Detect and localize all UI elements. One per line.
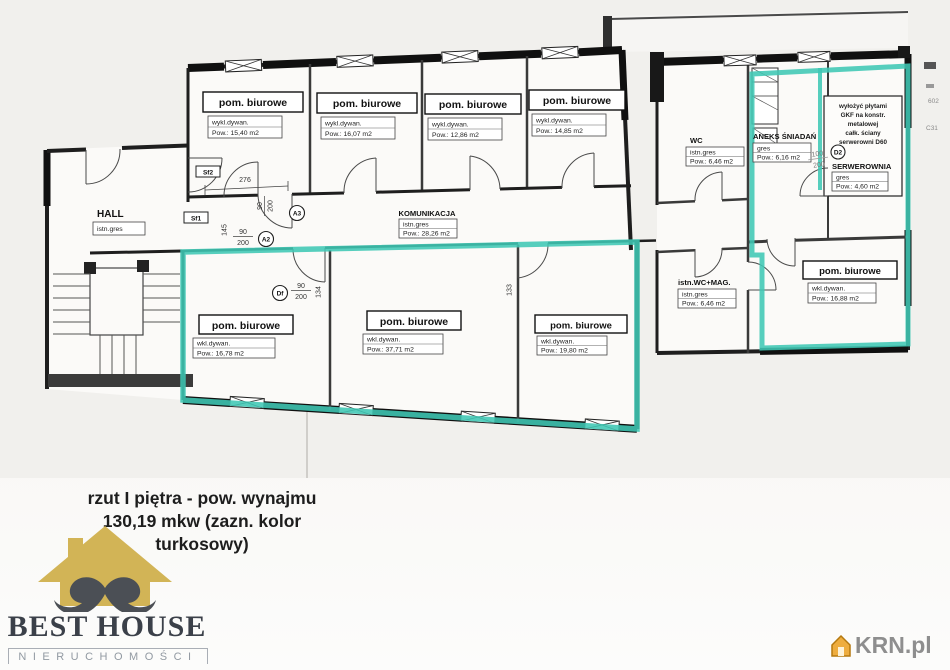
best-house-logo: BEST HOUSE NIERUCHOMOŚCI xyxy=(0,522,214,670)
room-area: Pow.: 37,71 m2 xyxy=(367,347,414,354)
dim-door-width: 90 xyxy=(257,202,264,210)
room-name: pom. biurowe xyxy=(219,97,287,109)
room-material: wkl.dywan. xyxy=(811,286,845,293)
room-material: istn.gres xyxy=(403,222,429,229)
room-name: WC xyxy=(690,136,703,145)
krn-watermark: KRN.pl xyxy=(830,632,932,659)
door-marker-a3: A3 xyxy=(293,211,302,218)
note-line: metalowej xyxy=(848,121,879,128)
room-material: wykl.dywan. xyxy=(431,122,469,129)
room-material: wykl.dywan. xyxy=(324,121,362,128)
artifact-text: C31 xyxy=(926,125,938,132)
dim-133: 133 xyxy=(507,284,514,296)
caption-line-1: rzut I piętra - pow. wynajmu xyxy=(52,487,352,510)
marker-sf2: Sf2 xyxy=(203,170,214,177)
dim-door-width: 90 xyxy=(239,229,247,236)
logo-subtitle: NIERUCHOMOŚCI xyxy=(8,648,208,664)
room-name: HALL xyxy=(97,209,124,220)
room-name: pom. biurowe xyxy=(543,95,611,107)
dim-door-height: 200 xyxy=(295,294,307,301)
krn-watermark-text: KRN.pl xyxy=(855,632,932,659)
room-label-komunikacja: KOMUNIKACJA istn.gres Pow.: 28,26 m2 xyxy=(399,209,457,238)
door-marker-a2: A2 xyxy=(262,237,271,244)
dim-door-width: 90 xyxy=(297,283,305,290)
room-material: wkl.dywan. xyxy=(196,341,230,348)
room-area: Pow.: 4,60 m2 xyxy=(836,184,879,191)
room-material: gres xyxy=(757,146,771,153)
hall-bottom-wall xyxy=(48,374,193,387)
room-name: pom. biurowe xyxy=(819,266,881,277)
room-area: Pow.: 6,16 m2 xyxy=(757,155,800,162)
room-label-aneks-sniadan: ANEKS ŚNIADAŃ gres Pow.: 6,16 m2 xyxy=(753,132,816,162)
room-name: pom. biurowe xyxy=(550,321,612,332)
krn-house-icon xyxy=(830,634,852,658)
room-area: Pow.: 16,07 m2 xyxy=(325,131,372,138)
room-name: pom. biurowe xyxy=(333,98,401,110)
logo-title: BEST HOUSE xyxy=(4,610,210,644)
room-material: istn.gres xyxy=(682,292,708,299)
room-name: pom. biurowe xyxy=(439,99,507,111)
room-area: Pow.: 16,78 m2 xyxy=(197,351,244,358)
room-area: Pow.: 6,46 m2 xyxy=(682,301,725,308)
room-area: Pow.: 12,86 m2 xyxy=(432,132,479,139)
floor-plan-drawing: pom. biurowe wykl.dywan. Pow.: 15,40 m2 … xyxy=(0,0,950,480)
marker-sf1: Sf1 xyxy=(191,216,202,223)
note-line: wyłożyć płytami xyxy=(838,103,887,110)
room-area: Pow.: 16,88 m2 xyxy=(812,296,859,303)
scanned-floor-plan-page: pom. biurowe wykl.dywan. Pow.: 15,40 m2 … xyxy=(0,0,950,670)
dim-door-height: 200 xyxy=(268,200,275,212)
note-line: całk. ściany xyxy=(845,130,881,137)
room-area: Pow.: 15,40 m2 xyxy=(212,130,259,137)
room-area: Pow.: 28,26 m2 xyxy=(403,231,450,238)
room-area: Pow.: 14,85 m2 xyxy=(536,128,583,135)
room-material: wykl.dywan. xyxy=(535,118,573,125)
dim-134: 134 xyxy=(316,286,323,298)
room-area: Pow.: 6,46 m2 xyxy=(690,159,733,166)
room-label-wc-mag: istn.WC+MAG. istn.gres Pow.: 6,46 m2 xyxy=(678,278,736,308)
note-line: GKF na konstr. xyxy=(841,112,886,119)
room-material: istn.gres xyxy=(97,226,123,233)
room-name: istn.WC+MAG. xyxy=(678,278,731,287)
house-mustache-icon xyxy=(30,526,180,612)
artifact-text: 602 xyxy=(928,98,939,105)
room-name: pom. biurowe xyxy=(212,320,280,332)
dim-door-height: 200 xyxy=(237,240,249,247)
room-area: Pow.: 19,80 m2 xyxy=(541,348,588,355)
note-line: serwerowni D60 xyxy=(839,139,887,146)
room-material: wkl.dywan. xyxy=(540,339,574,346)
dim-145: 145 xyxy=(222,224,229,236)
room-material: gres xyxy=(836,175,850,182)
door-marker-df: Df xyxy=(277,291,285,298)
room-name: KOMUNIKACJA xyxy=(399,209,456,218)
room-material: wykl.dywan. xyxy=(211,120,249,127)
room-name: ANEKS ŚNIADAŃ xyxy=(753,132,816,141)
dim-276: 276 xyxy=(239,177,251,184)
room-material: wkl.dywan. xyxy=(366,337,400,344)
room-name: pom. biurowe xyxy=(380,316,448,328)
room-material: istn.gres xyxy=(690,150,716,157)
room-name: SERWEROWNIA xyxy=(832,162,892,171)
door-marker-d2: D2 xyxy=(834,150,843,157)
